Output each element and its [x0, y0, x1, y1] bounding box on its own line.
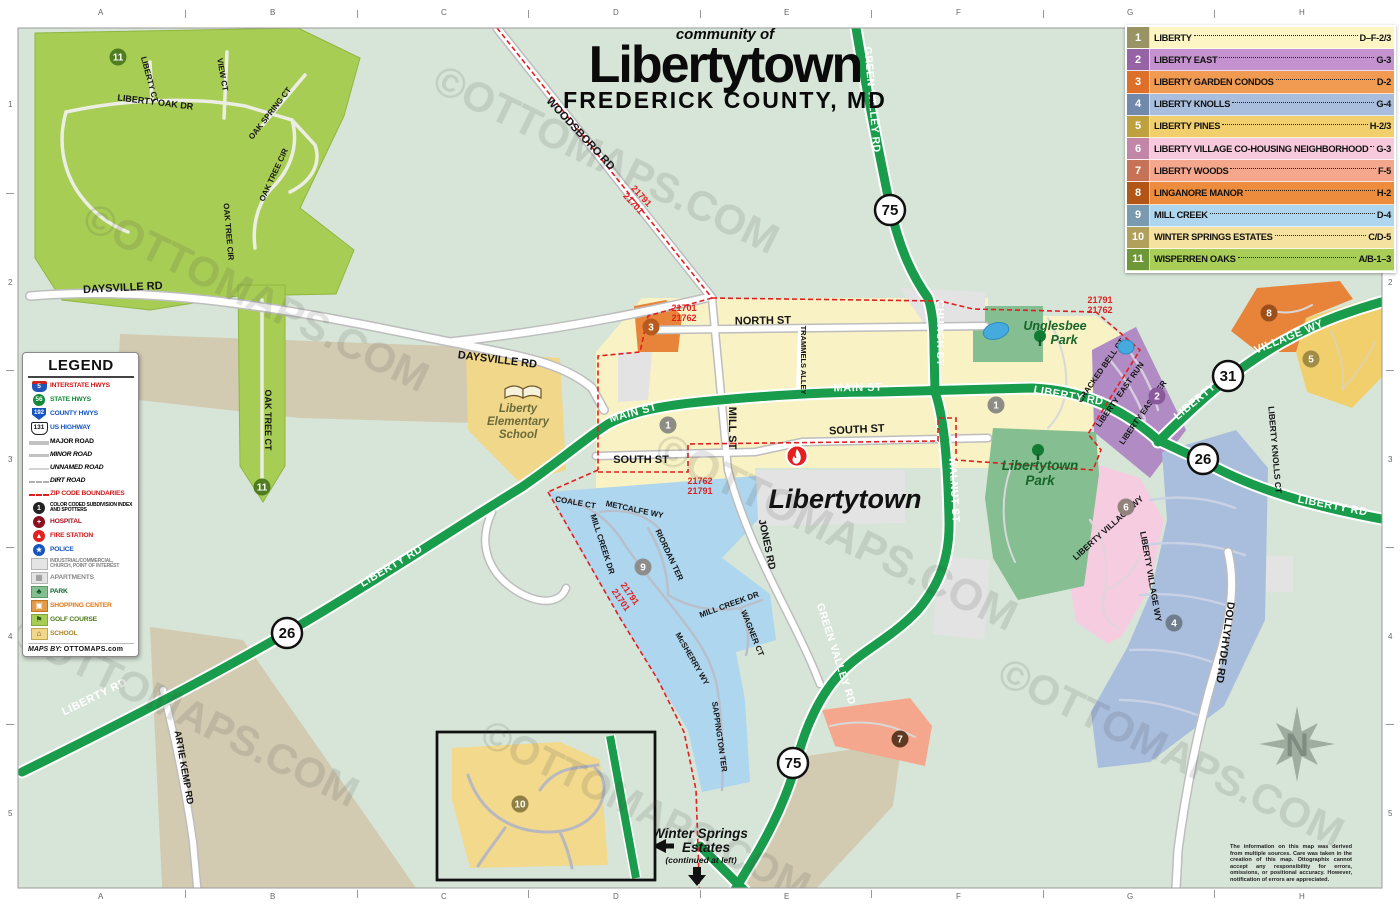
- spotter-legend-icon: 1: [28, 502, 50, 514]
- grid-col: E: [784, 892, 789, 901]
- street-label-oak-tree-ct: OAK TREE CT: [263, 389, 273, 451]
- label-unglesbee-park-2: Park: [1050, 333, 1078, 347]
- street-label-trammels: TRAMMELS ALLEY: [799, 326, 808, 395]
- us-hwy-icon: 131: [28, 422, 50, 435]
- grid-col: F: [956, 892, 961, 901]
- label-school-1: Liberty: [499, 403, 538, 415]
- grid-row: 1: [8, 100, 12, 109]
- label-school-2: Elementary: [487, 416, 550, 428]
- svg-text:2: 2: [1154, 392, 1160, 403]
- spotter-11: 11: [110, 49, 127, 66]
- svg-text:26: 26: [1195, 451, 1212, 468]
- shield-26: 26: [1188, 444, 1218, 474]
- spotter-9: 9: [635, 559, 652, 576]
- spotter-3: 3: [643, 319, 660, 336]
- compass-n: N: [1285, 727, 1308, 763]
- grid-col: D: [613, 892, 619, 901]
- svg-text:10: 10: [514, 800, 526, 811]
- svg-text:21791: 21791: [1087, 295, 1112, 305]
- label-unglesbee-park-1: Unglesbee: [1023, 319, 1086, 333]
- svg-text:21762: 21762: [671, 313, 696, 323]
- grid-col: E: [784, 8, 789, 17]
- industrial-icon: [28, 558, 50, 570]
- grid-col: F: [956, 8, 961, 17]
- svg-text:21701: 21701: [671, 303, 696, 313]
- index-row: 9MILL CREEKD-4: [1127, 205, 1394, 227]
- map-title: community of Libertytown FREDERICK COUNT…: [555, 28, 895, 112]
- index-row: 5LIBERTY PINESH-2/3: [1127, 116, 1394, 138]
- zip-boundary-icon: [28, 494, 50, 496]
- grid-col: A: [98, 8, 103, 17]
- fire-station-icon: [787, 446, 808, 467]
- index-row: 8LINGANORE MANORH-2: [1127, 182, 1394, 204]
- index-row: 2LIBERTY EASTG-3: [1127, 49, 1394, 71]
- svg-text:26: 26: [279, 625, 296, 642]
- index-row: 1LIBERTYD–F-2/3: [1127, 27, 1394, 49]
- spotter-2: 2: [1149, 388, 1166, 405]
- county-hwy-icon: 192: [28, 408, 50, 420]
- grid-col: H: [1299, 892, 1305, 901]
- grid-col: G: [1127, 892, 1133, 901]
- svg-text:1: 1: [993, 401, 999, 412]
- grid-col: C: [441, 8, 447, 17]
- legend: LEGEND 5INTERSTATE HWYS 56STATE HWYS 192…: [22, 352, 139, 657]
- police-icon: ★: [28, 544, 50, 556]
- grid-row: 5: [1388, 809, 1392, 818]
- spotter-11: 11: [254, 479, 271, 496]
- label-libertytown-park-2: Park: [1025, 473, 1056, 488]
- dirt-road-icon: [28, 481, 50, 483]
- index-row: 4LIBERTY KNOLLSG-4: [1127, 94, 1394, 116]
- svg-text:21762: 21762: [1087, 305, 1112, 315]
- apartments-icon: ▦: [28, 572, 50, 584]
- shield-31: 31: [1213, 361, 1243, 391]
- svg-text:5: 5: [1308, 355, 1314, 366]
- map-page: DAYSVILLE RD DAYSVILLE RD WOODSBORO RD N…: [0, 0, 1400, 908]
- svg-text:11: 11: [113, 53, 124, 64]
- shield-75: 75: [778, 748, 808, 778]
- svg-text:75: 75: [785, 755, 802, 772]
- svg-text:11: 11: [257, 483, 268, 494]
- legend-credit: MAPS BY: OTTOMAPS.com: [28, 643, 134, 653]
- index-row: 7LIBERTY WOODSF-5: [1127, 160, 1394, 182]
- grid-col: G: [1127, 8, 1133, 17]
- unnamed-road-icon: [28, 468, 50, 470]
- grid-row: 2: [1388, 278, 1392, 287]
- svg-text:9: 9: [640, 563, 646, 574]
- spotter-8: 8: [1261, 305, 1278, 322]
- grid-col: B: [270, 8, 275, 17]
- svg-text:31: 31: [1220, 368, 1237, 385]
- hwy-label-main-c: MAIN ST: [833, 382, 882, 395]
- golf-course-icon: ⚑: [28, 614, 50, 626]
- grid-row: 3: [8, 455, 12, 464]
- svg-text:7: 7: [897, 735, 903, 746]
- shopping-center-icon: ▣: [28, 600, 50, 612]
- label-school-3: School: [499, 429, 538, 441]
- fire-station-icon: ▲: [28, 530, 50, 542]
- svg-text:3: 3: [648, 323, 654, 334]
- street-label-north-st: NORTH ST: [735, 315, 792, 328]
- minor-road-icon: [28, 454, 50, 457]
- park-icon: ♣: [28, 586, 50, 598]
- spotter-5: 5: [1303, 351, 1320, 368]
- title-county: FREDERICK COUNTY, MD: [555, 88, 895, 112]
- shield-75: 75: [875, 195, 905, 225]
- spotter-7: 7: [892, 731, 909, 748]
- index-row: 6LIBERTY VILLAGE CO-HOUSING NEIGHBORHOOD…: [1127, 138, 1394, 160]
- state-hwy-icon: 56: [28, 394, 50, 406]
- index-row: 10WINTER SPRINGS ESTATESC/D-5: [1127, 227, 1394, 249]
- grid-row: 3: [1388, 455, 1392, 464]
- grid-col: A: [98, 892, 103, 901]
- grid-row: 5: [8, 809, 12, 818]
- interstate-shield-icon: 5: [28, 381, 50, 392]
- grid-col: D: [613, 8, 619, 17]
- spotter-10: 10: [512, 796, 529, 813]
- svg-text:8: 8: [1266, 309, 1272, 320]
- spotter-6: 6: [1118, 499, 1135, 516]
- index-row: 3LIBERTY GARDEN CONDOSD-2: [1127, 71, 1394, 93]
- subdivision-index: 1LIBERTYD–F-2/3 2LIBERTY EASTG-3 3LIBERT…: [1125, 25, 1396, 273]
- grid-col: C: [441, 892, 447, 901]
- hospital-icon: +: [28, 516, 50, 528]
- school-icon: ⌂: [28, 628, 50, 640]
- spotter-4: 4: [1166, 615, 1183, 632]
- svg-text:4: 4: [1171, 619, 1177, 630]
- grid-col: H: [1299, 8, 1305, 17]
- spotter-1: 1: [988, 397, 1005, 414]
- major-road-icon: [28, 441, 50, 445]
- grid-row: 2: [8, 278, 12, 287]
- pond-icon: [1118, 340, 1134, 354]
- legend-title: LEGEND: [28, 357, 134, 378]
- shield-26: 26: [272, 618, 302, 648]
- grid-row: 4: [1388, 632, 1392, 641]
- svg-text:75: 75: [882, 202, 899, 219]
- grid-col: B: [270, 892, 275, 901]
- svg-text:6: 6: [1123, 503, 1129, 514]
- disclaimer-note: The information on this map was derived …: [1230, 844, 1352, 884]
- grid-row: 4: [8, 632, 12, 641]
- hwy-label-church: CHURCH ST: [934, 300, 946, 366]
- index-row: 11WISPERREN OAKSA/B-1–3: [1127, 249, 1394, 271]
- street-label-mill-st: MILL ST: [726, 407, 738, 450]
- title-name: Libertytown: [555, 42, 895, 88]
- label-libertytown-park-1: Libertytown: [1002, 458, 1079, 473]
